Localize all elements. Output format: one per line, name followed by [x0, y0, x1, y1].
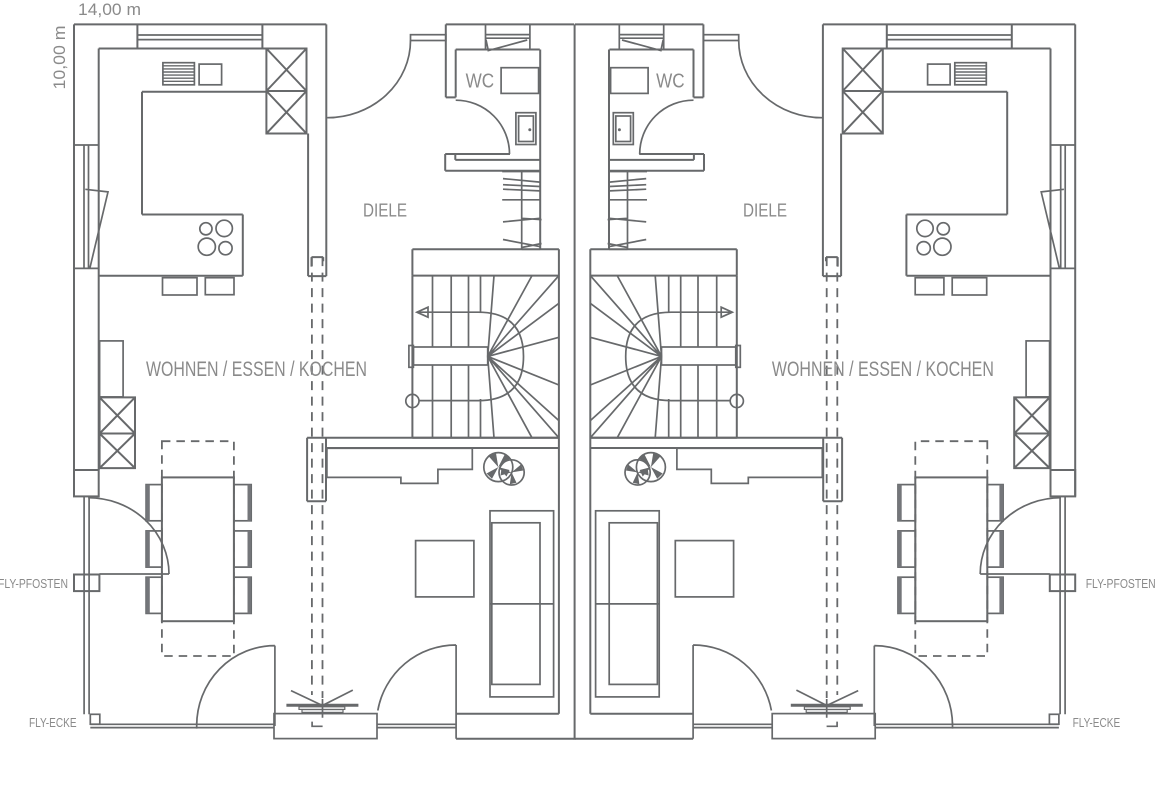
svg-text:10,00 m: 10,00 m: [50, 26, 69, 90]
svg-text:WC: WC: [466, 71, 495, 93]
svg-text:WOHNEN / ESSEN / KOCHEN: WOHNEN / ESSEN / KOCHEN: [772, 357, 994, 381]
svg-text:FLY-ECKE: FLY-ECKE: [1073, 715, 1121, 730]
svg-text:DIELE: DIELE: [363, 201, 407, 221]
svg-text:14,00 m: 14,00 m: [78, 0, 141, 19]
svg-text:FLY-ECKE: FLY-ECKE: [29, 715, 77, 730]
svg-text:WOHNEN / ESSEN / KOCHEN: WOHNEN / ESSEN / KOCHEN: [146, 357, 367, 381]
svg-text:FLY-PFOSTEN: FLY-PFOSTEN: [0, 576, 68, 591]
svg-text:DIELE: DIELE: [743, 201, 787, 221]
svg-text:WC: WC: [656, 71, 685, 93]
svg-text:FLY-PFOSTEN: FLY-PFOSTEN: [1086, 576, 1156, 591]
